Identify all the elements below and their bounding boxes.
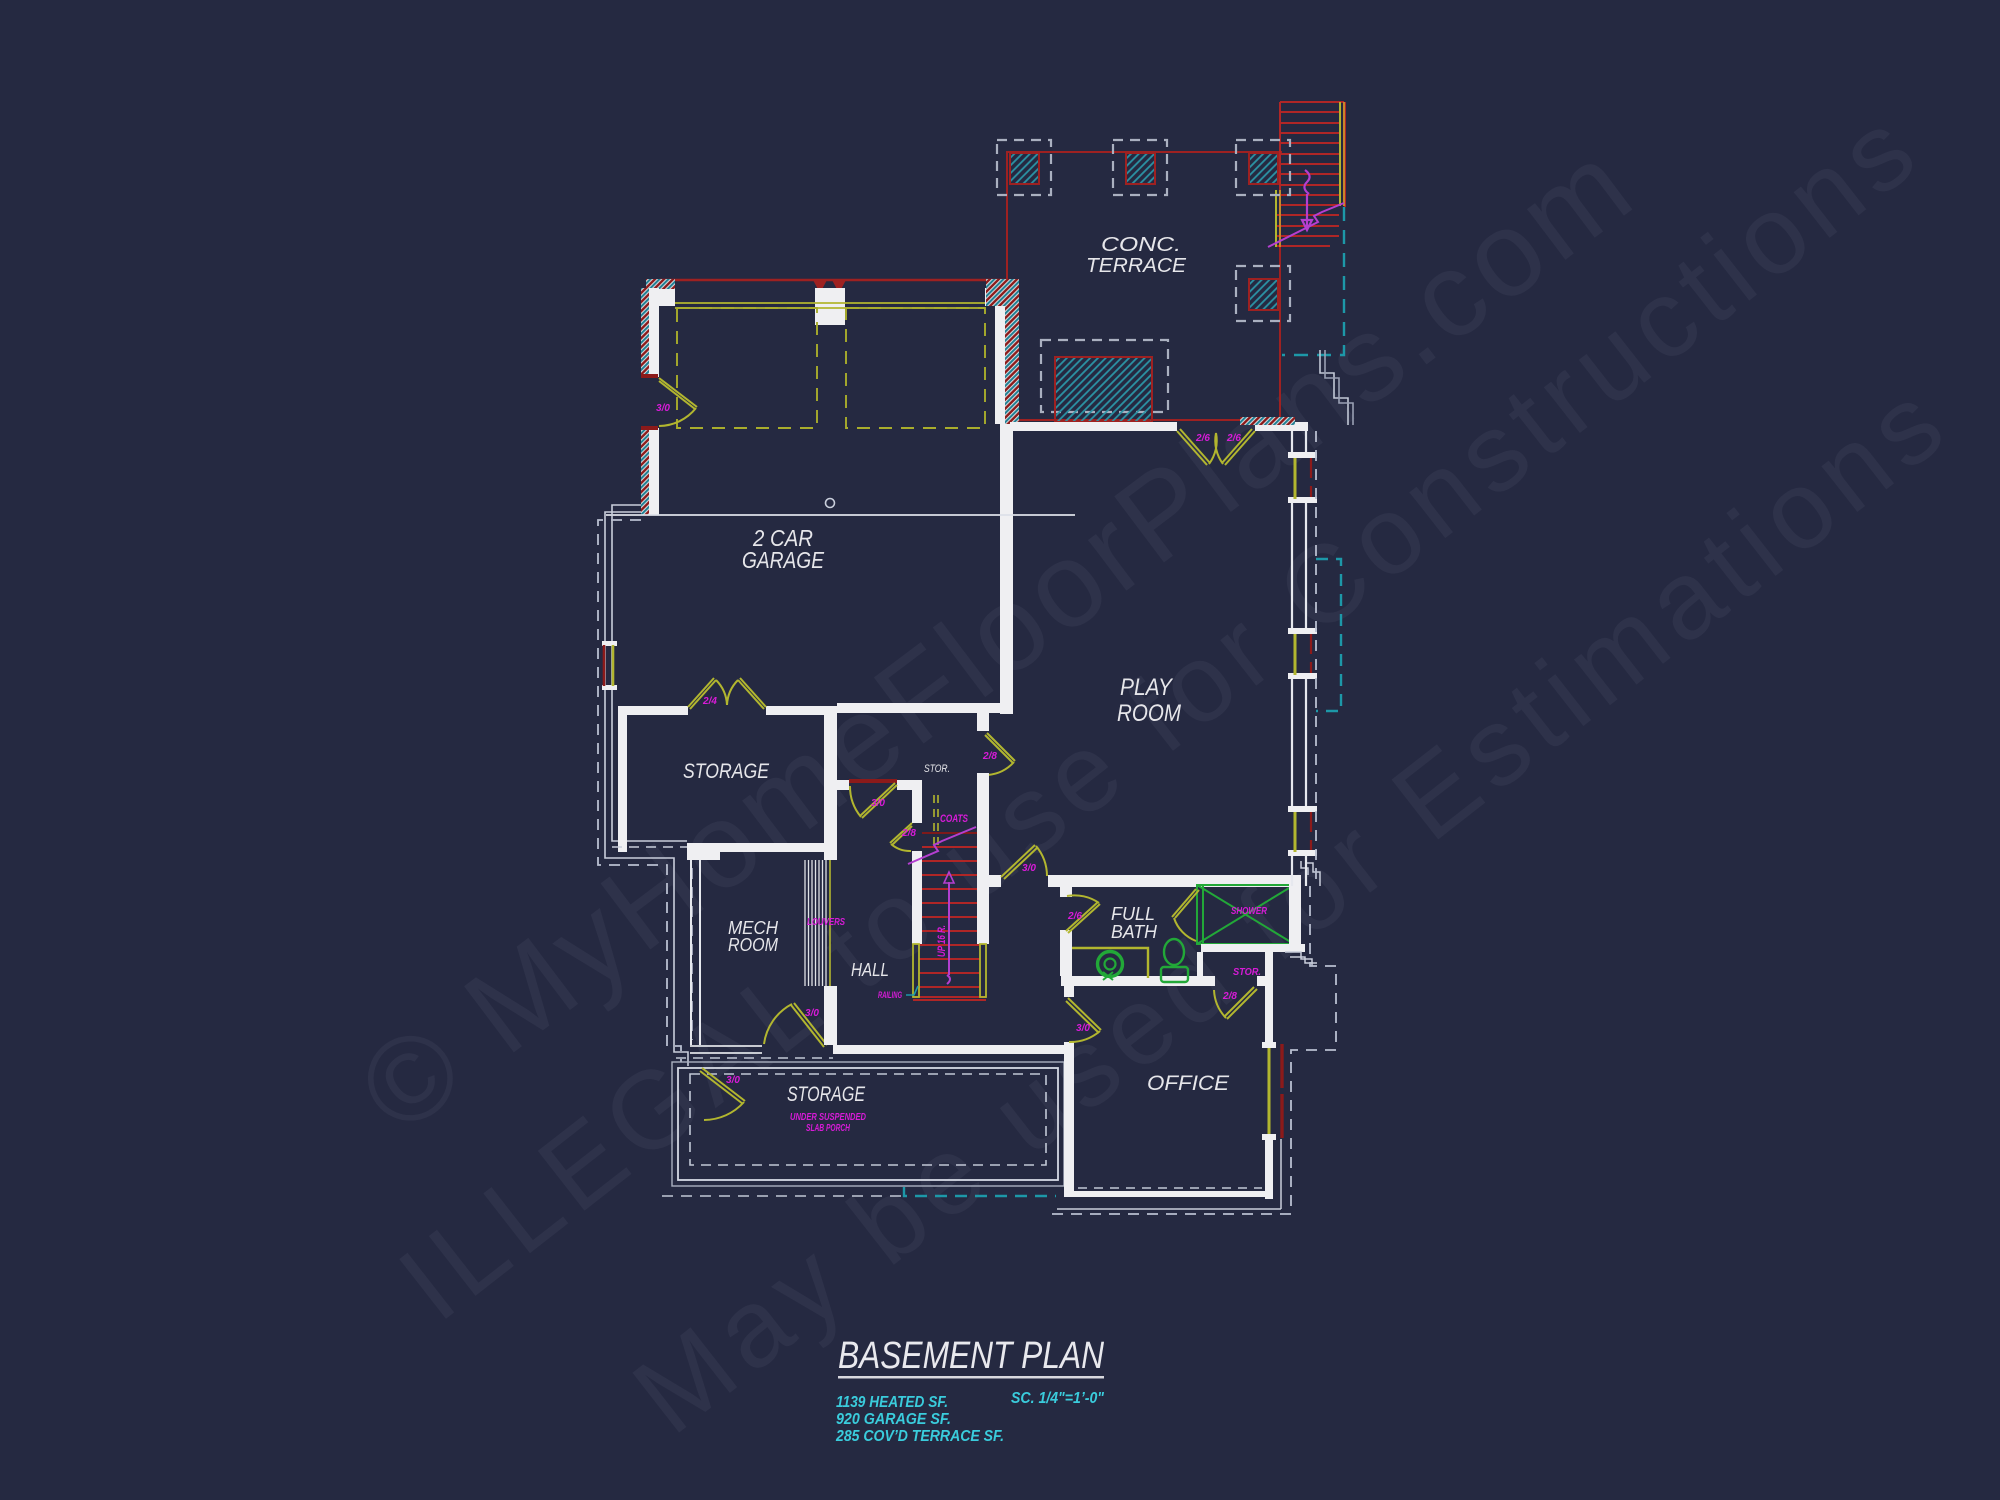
svg-text:RAILING: RAILING [878,990,902,1000]
svg-text:SHOWER: SHOWER [1231,906,1268,917]
svg-text:GARAGE: GARAGE [742,547,825,573]
svg-text:3/0: 3/0 [871,798,885,809]
svg-text:2/6: 2/6 [1226,433,1241,444]
svg-text:TERRACE: TERRACE [1086,255,1187,277]
svg-text:2/8: 2/8 [901,828,916,839]
svg-text:3/0: 3/0 [805,1008,819,1019]
svg-text:PLAY: PLAY [1120,674,1174,701]
svg-text:BATH: BATH [1111,922,1158,942]
svg-text:2/4: 2/4 [702,696,717,707]
svg-text:FULL: FULL [1111,904,1155,924]
svg-text:STORAGE: STORAGE [683,760,770,783]
svg-text:SLAB PORCH: SLAB PORCH [806,1123,851,1134]
svg-text:CONC.: CONC. [1101,234,1181,256]
svg-text:3/0: 3/0 [1022,863,1036,874]
svg-text:3/0: 3/0 [726,1075,740,1086]
svg-text:UNDER SUSPENDED: UNDER SUSPENDED [790,1112,866,1123]
svg-text:ROOM: ROOM [1117,700,1181,727]
svg-text:HALL: HALL [851,960,889,980]
svg-text:2/8: 2/8 [982,751,997,762]
svg-text:2/8: 2/8 [1222,991,1237,1002]
svg-text:285 COV’D TERRACE SF.: 285 COV’D TERRACE SF. [835,1428,1004,1445]
svg-text:ROOM: ROOM [728,935,778,955]
svg-text:LOUVERS: LOUVERS [807,917,845,928]
svg-text:1139 HEATED SF.: 1139 HEATED SF. [836,1394,948,1411]
svg-text:BASEMENT PLAN: BASEMENT PLAN [838,1335,1104,1377]
svg-text:OFFICE: OFFICE [1147,1072,1230,1095]
svg-text:SC. 1/4"=1’-0": SC. 1/4"=1’-0" [1011,1390,1104,1407]
svg-text:COATS: COATS [940,813,968,825]
svg-text:920 GARAGE SF.: 920 GARAGE SF. [836,1411,951,1428]
svg-text:STOR.: STOR. [924,763,950,775]
svg-text:2/6: 2/6 [1195,433,1210,444]
svg-text:UP 16 R.: UP 16 R. [936,925,948,957]
svg-text:STORAGE: STORAGE [787,1083,866,1106]
svg-text:3/0: 3/0 [656,403,670,414]
svg-text:3/0: 3/0 [1076,1023,1090,1034]
svg-text:2/6: 2/6 [1067,911,1082,922]
svg-text:STOR.: STOR. [1233,967,1261,978]
